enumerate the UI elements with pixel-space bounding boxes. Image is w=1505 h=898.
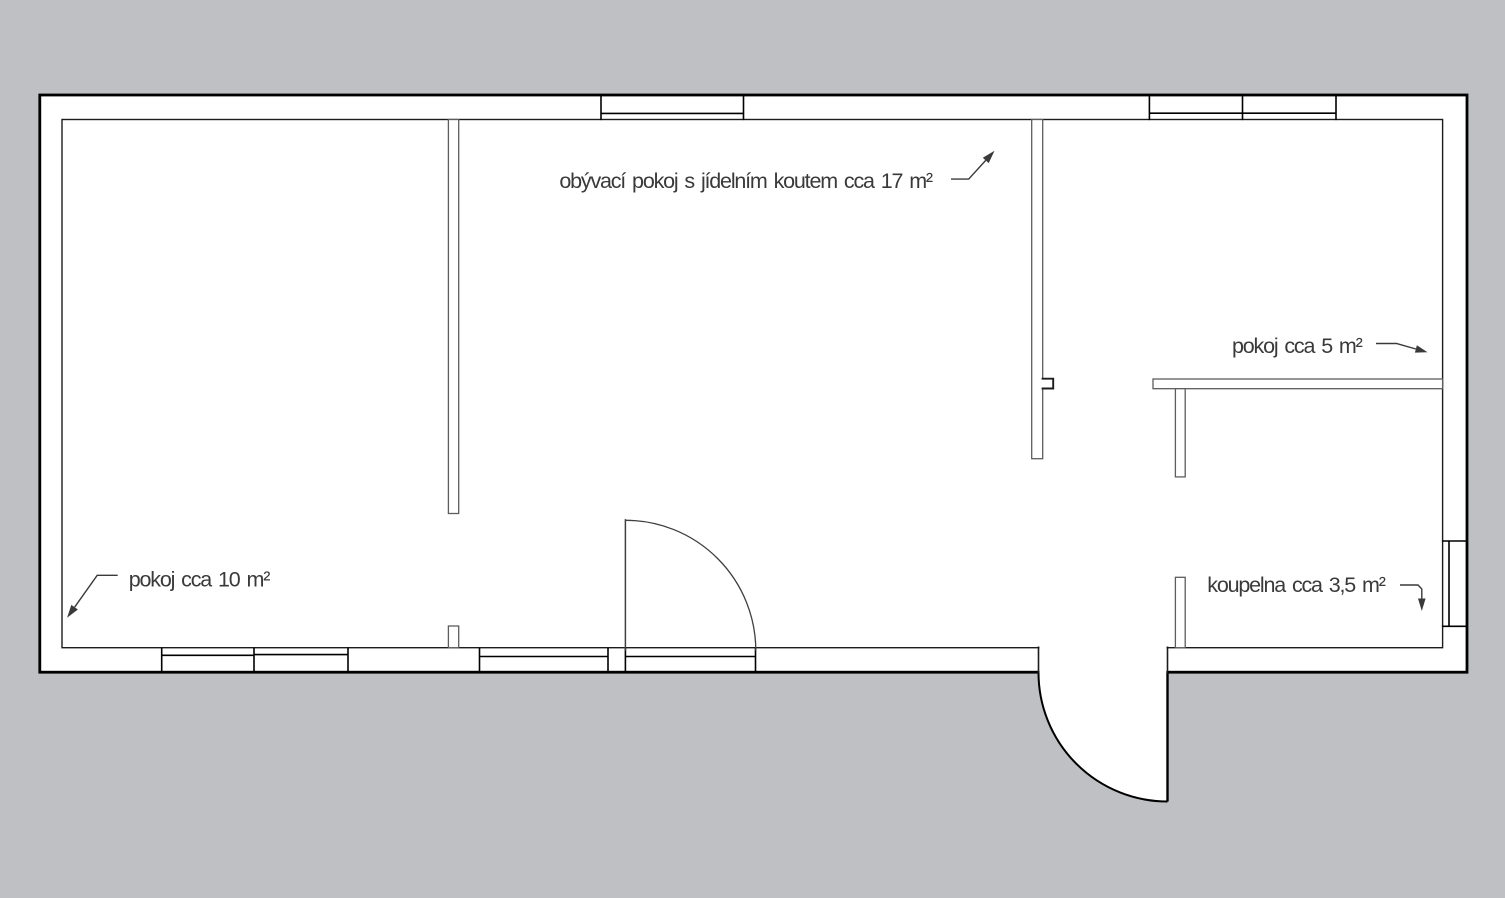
svg-text:koupelna cca 3,5 m²: koupelna cca 3,5 m² (1207, 573, 1385, 597)
svg-text:obývací pokoj s jídelním koute: obývací pokoj s jídelním koutem cca 17 m… (559, 169, 933, 193)
svg-text:pokoj cca 10 m²: pokoj cca 10 m² (129, 568, 270, 592)
svg-text:pokoj cca 5 m²: pokoj cca 5 m² (1232, 334, 1363, 358)
